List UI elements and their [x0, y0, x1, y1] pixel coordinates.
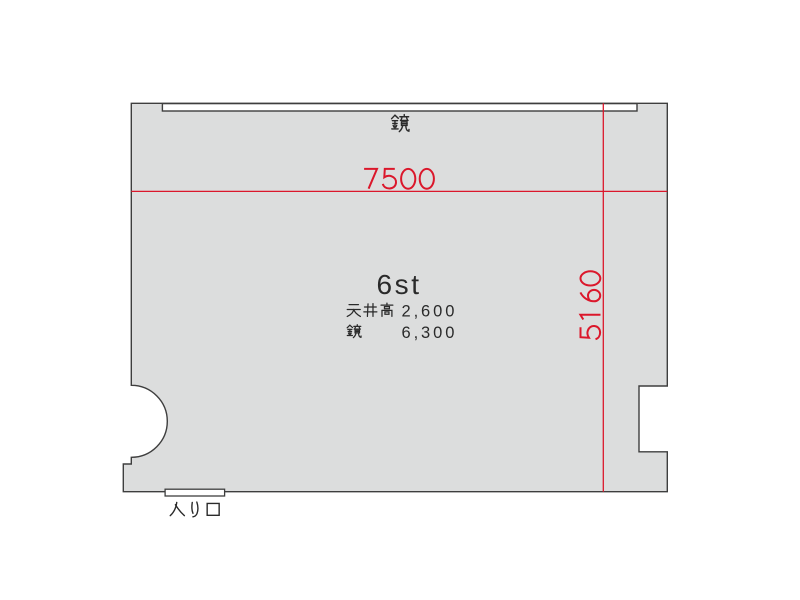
svg-text:6,300: 6,300 — [402, 324, 458, 342]
svg-text:6st: 6st — [377, 269, 422, 300]
svg-text:2,600: 2,600 — [402, 302, 458, 320]
